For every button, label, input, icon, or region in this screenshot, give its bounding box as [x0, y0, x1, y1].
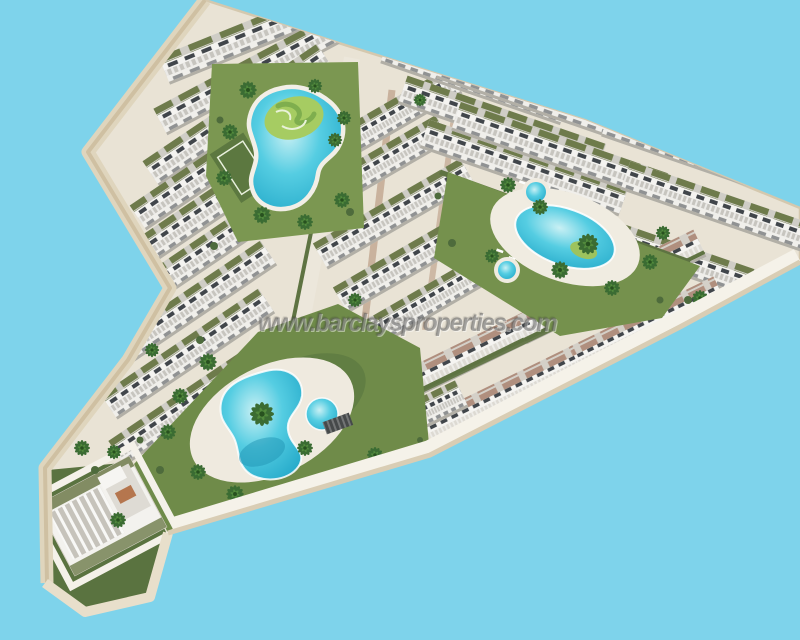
- north-courtyard-garden: [206, 62, 364, 242]
- aerial-render-scene: [0, 0, 800, 640]
- property-render-image: www.barclaysproperties.com: [0, 0, 800, 640]
- spa-pool-lower: [494, 257, 520, 283]
